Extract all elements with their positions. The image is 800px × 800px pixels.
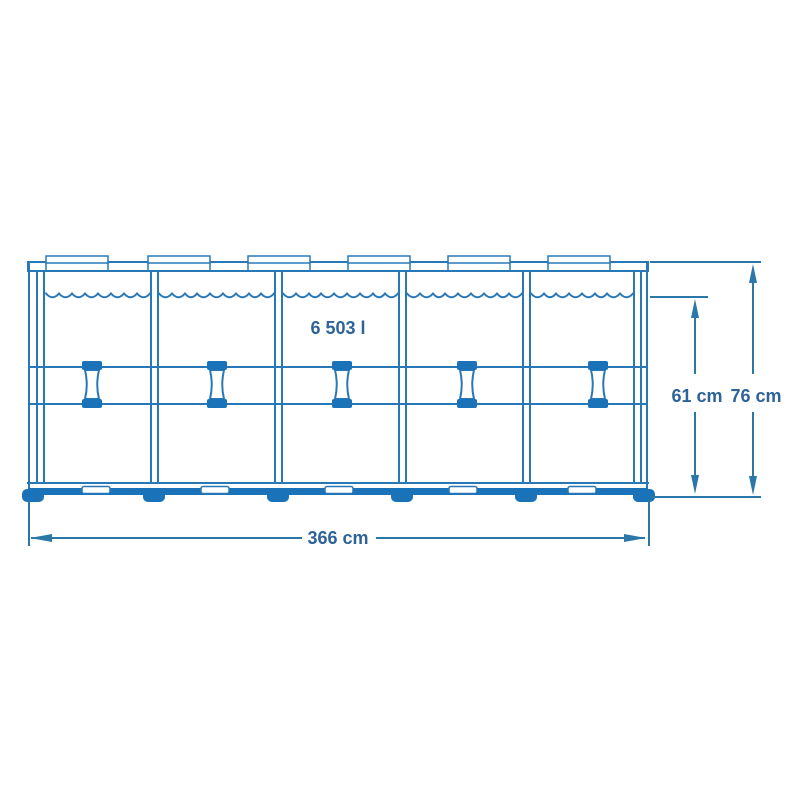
total-height-dimension-label: 76 cm: [730, 386, 781, 406]
arrow-right-icon: [624, 534, 646, 542]
arrow-left-icon: [30, 534, 52, 542]
bottom-rail: [22, 483, 655, 502]
connector: [82, 361, 102, 408]
connector: [207, 361, 227, 408]
water-height-dimension-label: 61 cm: [671, 386, 722, 406]
water-height-dimension: 61 cm: [650, 297, 723, 494]
arrow-down-icon: [749, 476, 757, 495]
connector: [588, 361, 608, 408]
capacity-label: 6 503 l: [310, 318, 365, 338]
diagram-canvas: 6 503 l 366 cm 61 cm 76 cm: [0, 0, 800, 800]
arrow-up-icon: [691, 299, 699, 318]
width-dimension: 366 cm: [29, 500, 649, 548]
top-rail: [28, 256, 648, 271]
width-dimension-label: 366 cm: [307, 528, 368, 548]
connector: [332, 361, 352, 408]
arrow-down-icon: [691, 475, 699, 494]
pool-frame: 6 503 l: [22, 256, 655, 502]
pool-diagram: 6 503 l 366 cm 61 cm 76 cm: [0, 0, 800, 800]
connector: [457, 361, 477, 408]
arrow-up-icon: [749, 264, 757, 283]
water-line: [46, 294, 633, 298]
